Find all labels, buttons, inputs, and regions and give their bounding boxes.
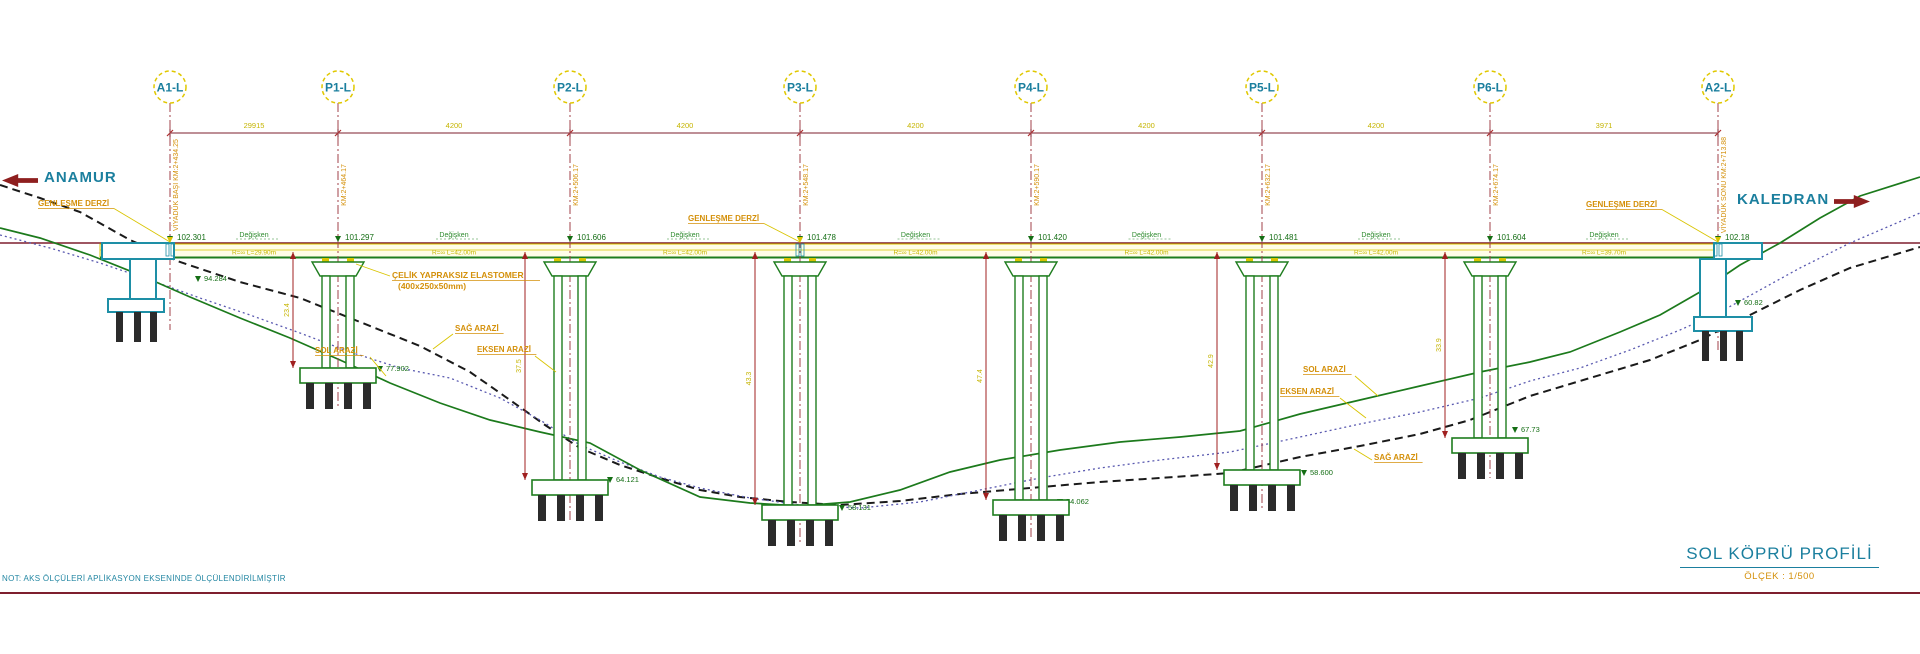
terrain-lines (0, 177, 1920, 508)
axis-label: P4-L (1018, 81, 1044, 95)
axis-chainage-note: KM:2+506.17 (573, 164, 580, 206)
pile (806, 520, 814, 546)
deck-elevation-value: 101.604 (1497, 233, 1526, 242)
pile (1056, 515, 1064, 541)
axis-chainage-note: KM:2+674.17 (1493, 164, 1500, 206)
pier-footing (993, 500, 1069, 515)
terrain-label: SAĞ ARAZİ (1374, 453, 1418, 462)
expansion-joint-callout: GENLEŞME DERZİ (38, 199, 173, 243)
pier-footing (1224, 470, 1300, 485)
pile (538, 495, 546, 521)
deck-slope-label: Değişken (1361, 232, 1390, 239)
deck-segment-label: R=∞ L=42.00m (1124, 250, 1168, 257)
pile (1720, 331, 1727, 361)
foundation-elevation-value: 67.73 (1521, 425, 1540, 434)
pier-column (554, 276, 562, 480)
axis-label: A1-L (157, 81, 184, 95)
axis-A1-L: A1-LVİYADÜK BAŞI KM:2+434.25102.30194.28… (102, 71, 227, 342)
terrain-label-callout: EKSEN ARAZİ (1280, 387, 1366, 418)
abutment-seat (102, 243, 174, 259)
deck-elevation-value: 101.478 (807, 233, 836, 242)
foundation-elevation-marker (839, 505, 845, 511)
pier-height-dim-value: 33.9 (1436, 338, 1443, 352)
deck-slope-label: Değişken (1132, 232, 1161, 239)
pier-column (1039, 276, 1047, 500)
terrain-line-sag-arazi (0, 185, 1920, 505)
drawing-title: SOL KÖPRÜ PROFİLİ (1680, 544, 1878, 568)
pier-height-dim-value: 37.5 (516, 359, 523, 373)
pier-footing (1452, 438, 1528, 453)
axis-P3-L: P3-LKM:2+548.17101.47858.13143.3 (746, 71, 871, 546)
bearing-label-line2: (400x250x50mm) (398, 281, 466, 291)
deck-segment-label: R=∞ L=42.00m (1354, 250, 1398, 257)
pier-footing (762, 505, 838, 520)
pile (1230, 485, 1238, 511)
deck-elevation-marker (1487, 236, 1493, 242)
deck-elevation-marker (567, 236, 573, 242)
terrain-label: EKSEN ARAZİ (477, 345, 531, 354)
pile (768, 520, 776, 546)
terrain-label-callout: SAĞ ARAZİ (1354, 449, 1423, 463)
pier-column (808, 276, 816, 505)
pile (1287, 485, 1295, 511)
deck-segment-label: R=∞ L=39.70m (1582, 250, 1626, 257)
pier-column (578, 276, 586, 480)
pier-cap (1236, 262, 1288, 276)
bearing-callout: ÇELİK YAPRAKSIZ ELASTOMER(400x250x50mm) (356, 264, 540, 291)
pile (1477, 453, 1485, 479)
deck-segment-label: R=∞ L=42.00m (893, 250, 937, 257)
pile (825, 520, 833, 546)
pier-column (784, 276, 792, 505)
axis-label: P2-L (557, 81, 583, 95)
deck-elevation-value: 101.481 (1269, 233, 1298, 242)
pier-height-dim-value: 43.3 (746, 372, 753, 386)
pile (363, 383, 371, 409)
pile (1496, 453, 1504, 479)
foundation-elevation-value: 94.284 (204, 274, 227, 283)
pier-cap (1464, 262, 1516, 276)
axis-chainage-note: KM:2+464.17 (341, 164, 348, 206)
deck-elevation-value: 101.606 (577, 233, 606, 242)
axis-P5-L: P5-LKM:2+632.17101.48158.60042.9 (1208, 71, 1333, 511)
deck-segment-label: R=∞ L=42.00m (663, 250, 707, 257)
pile (344, 383, 352, 409)
deck-slope-label: Değişken (239, 232, 268, 239)
foundation-elevation-value: 60.82 (1744, 298, 1763, 307)
axis-label: P3-L (787, 81, 813, 95)
pile (1268, 485, 1276, 511)
drawing-canvas: 29915420042004200420042003971A1-LVİYADÜK… (0, 0, 1920, 654)
pile (1249, 485, 1257, 511)
span-dimension-value: 4200 (1138, 121, 1155, 130)
span-dimension-value: 4200 (907, 121, 924, 130)
bridge-profile-drawing: 29915420042004200420042003971A1-LVİYADÜK… (0, 0, 1920, 654)
pier-cap (544, 262, 596, 276)
pier-column (1474, 276, 1482, 438)
foundation-elevation-value: 77.902 (386, 364, 409, 373)
span-dimension-value: 29915 (244, 121, 265, 130)
pile (1018, 515, 1026, 541)
terrain-label: SAĞ ARAZİ (455, 324, 499, 333)
axis-P1-L: P1-LKM:2+464.17101.29777.90223.4 (284, 71, 409, 409)
abutment-stem (130, 259, 156, 299)
axis-P6-L: P6-LKM:2+674.17101.60467.7333.9 (1436, 71, 1540, 479)
foundation-elevation-marker (1735, 300, 1741, 306)
pier-column (1270, 276, 1278, 470)
axis-P4-L: P4-LKM:2+590.17101.42054.06247.4 (977, 71, 1089, 541)
pile (306, 383, 314, 409)
axis-P2-L: P2-LKM:2+506.17101.60664.12137.5 (516, 71, 639, 521)
leader-line (433, 334, 453, 349)
foundation-elevation-value: 58.131 (848, 503, 871, 512)
pier-column (1246, 276, 1254, 470)
deck-elevation-marker (335, 236, 341, 242)
leader-line (1662, 210, 1718, 243)
abutment-seat (1714, 243, 1762, 259)
deck-elevation-value: 101.420 (1038, 233, 1067, 242)
pier-height-dim-value: 23.4 (284, 303, 291, 317)
pile (595, 495, 603, 521)
axis-label: A2-L (1705, 81, 1732, 95)
pile (576, 495, 584, 521)
axis-chainage-note: KM:2+632.17 (1265, 164, 1272, 206)
deck-slope-label: Değişken (439, 232, 468, 239)
leader-line (356, 264, 390, 276)
leader-line (1354, 449, 1372, 460)
terrain-label: SOL ARAZİ (1303, 365, 1346, 374)
deck-elevation-marker (1028, 236, 1034, 242)
foundation-elevation-marker (195, 276, 201, 282)
pile (1037, 515, 1045, 541)
title-block: SOL KÖPRÜ PROFİLİ ÖLÇEK : 1/500 (1672, 544, 1887, 582)
destination-label-anamur: ANAMUR (44, 169, 117, 186)
deck-slope-label: Değişken (1589, 232, 1618, 239)
terrain-label: EKSEN ARAZİ (1280, 387, 1334, 396)
axis-chainage-note: VİYADÜK BAŞI KM:2+434.25 (171, 139, 180, 231)
axis-label: P1-L (325, 81, 351, 95)
deck-elevation-value: 101.297 (345, 233, 374, 242)
deck-elevation-value: 102.301 (177, 233, 206, 242)
pile (1458, 453, 1466, 479)
leader-line (764, 224, 800, 243)
span-dimension-value: 3971 (1596, 121, 1613, 130)
pile (557, 495, 565, 521)
pier-cap (774, 262, 826, 276)
span-dimension-value: 4200 (446, 121, 463, 130)
deck-slope-label: Değişken (670, 232, 699, 239)
expansion-joint-label: GENLEŞME DERZİ (1586, 200, 1657, 209)
foundation-elevation-value: 64.121 (616, 475, 639, 484)
deck-segment-label: R=∞ L=29.90m (232, 250, 276, 257)
pile (116, 312, 123, 342)
terrain-label: SOL ARAZİ (315, 346, 358, 355)
deck-segment-label: R=∞ L=42.00m (432, 250, 476, 257)
pier-column (1498, 276, 1506, 438)
expansion-joint-callout: GENLEŞME DERZİ (688, 214, 803, 243)
axis-chainage-note: VİYADÜK SONU KM:2+713.88 (1719, 137, 1728, 233)
terrain-line-sol-arazi (0, 177, 1920, 506)
span-dimension-value: 4200 (1368, 121, 1385, 130)
span-dimension-line: 29915420042004200420042003971 (167, 121, 1721, 139)
drawing-scale: ÖLÇEK : 1/500 (1672, 571, 1887, 582)
pier-footing (532, 480, 608, 495)
leader-line (535, 356, 556, 372)
pile (134, 312, 141, 342)
pile (1736, 331, 1743, 361)
deck-slope-label: Değişken (901, 232, 930, 239)
pier-footing (300, 368, 376, 383)
expansion-joint-label: GENLEŞME DERZİ (38, 199, 109, 208)
pile (325, 383, 333, 409)
abutment-footing (108, 299, 164, 312)
axis-label: P5-L (1249, 81, 1275, 95)
pier-height-dim-value: 42.9 (1208, 354, 1215, 368)
destination-label-kaledran: KALEDRAN (1737, 191, 1829, 208)
pile (787, 520, 795, 546)
leader-line (1355, 376, 1378, 396)
pier-height-dim-value: 47.4 (977, 369, 984, 383)
axis-chainage-note: KM:2+590.17 (1034, 164, 1041, 206)
abutment-stem (1700, 259, 1726, 317)
span-dimension-value: 4200 (677, 121, 694, 130)
pier-cap (1005, 262, 1057, 276)
deck-elevation-marker (1259, 236, 1265, 242)
deck-elevation-value: 102.18 (1725, 233, 1750, 242)
bearing-label-line1: ÇELİK YAPRAKSIZ ELASTOMER (392, 270, 524, 280)
axis-chainage-note: KM:2+548.17 (803, 164, 810, 206)
pile (1515, 453, 1523, 479)
foundation-elevation-marker (1301, 470, 1307, 476)
pile (999, 515, 1007, 541)
foundation-elevation-marker (1512, 427, 1518, 433)
axis-A2-L: A2-LVİYADÜK SONU KM:2+713.88102.1860.82 (1694, 71, 1763, 361)
pile (150, 312, 157, 342)
foundation-elevation-value: 58.600 (1310, 468, 1333, 477)
expansion-joint-label: GENLEŞME DERZİ (688, 214, 759, 223)
axis-label: P6-L (1477, 81, 1503, 95)
pier-column (1015, 276, 1023, 500)
bottom-note: NOT: AKS ÖLÇÜLERİ APLİKASYON EKSENİNDE Ö… (2, 574, 286, 583)
leader-line (114, 209, 170, 243)
abutment-footing (1694, 317, 1752, 331)
pile (1702, 331, 1709, 361)
